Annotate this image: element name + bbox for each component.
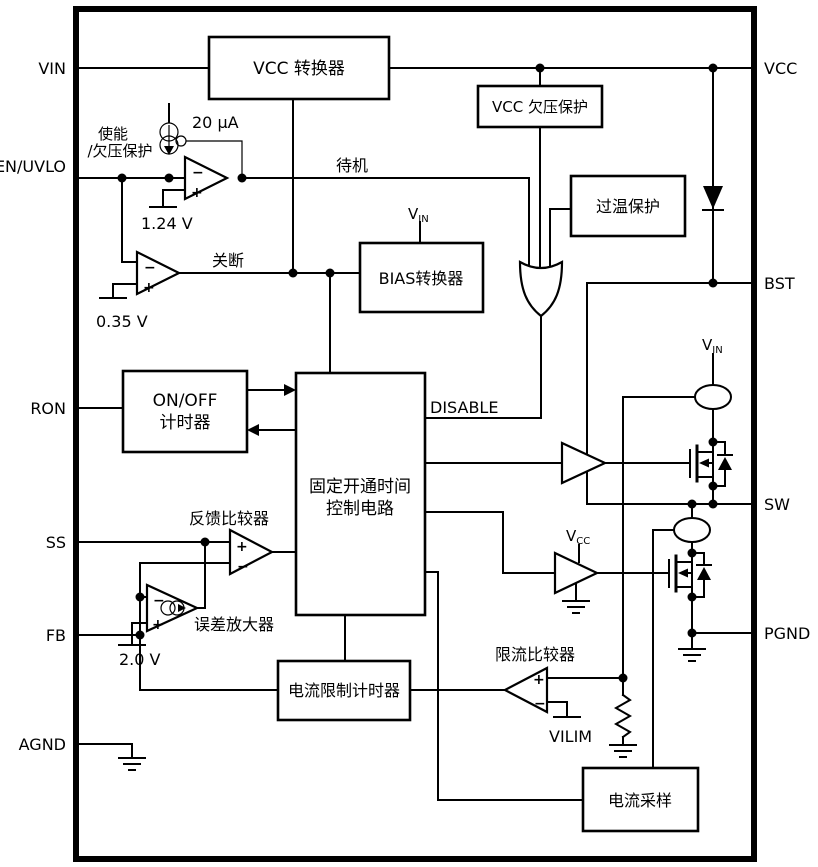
vref-en-label: 1.24 V — [141, 214, 193, 233]
cot-control-label-1: 固定开通时间 — [309, 477, 411, 497]
error-amp-label: 误差放大器 — [194, 615, 274, 634]
bias-converter-block: BIAS转换器 — [360, 243, 483, 312]
disable-label: DISABLE — [430, 398, 498, 417]
pin-vin: VIN — [38, 59, 66, 78]
error-amplifier: − + — [147, 585, 197, 633]
en-comparator: − + — [185, 157, 227, 201]
high-side-mosfet — [690, 442, 732, 486]
vcc-uvp-block: VCC 欠压保护 — [478, 86, 602, 127]
error-amplifier-plus: + — [152, 617, 164, 633]
feedback-comparator-minus: − — [237, 559, 249, 575]
diagram-canvas: VCC 转换器 VCC 欠压保护 过温保护 BIAS转换器 ON/OFF 计时器… — [0, 0, 818, 867]
en-bias-current-source — [160, 123, 186, 155]
ilim-comparator-label: 限流比较器 — [495, 645, 575, 664]
on-off-timer-label-2: 计时器 — [160, 413, 211, 433]
bias-vin-label: VIN — [408, 205, 429, 225]
on-off-timer-label-1: ON/OFF — [153, 391, 218, 411]
shutdown-comparator: − + — [137, 252, 179, 296]
standby-label: 待机 — [336, 156, 368, 175]
otp-block: 过温保护 — [571, 176, 685, 236]
fb-comparator-label: 反馈比较器 — [189, 509, 269, 528]
ilim-timer-block: 电流限制计时器 — [278, 661, 410, 720]
bias-converter-label: BIAS转换器 — [379, 269, 464, 288]
en-comparator-plus: + — [191, 185, 203, 201]
shutdown-comparator-minus: − — [144, 260, 156, 276]
low-driver-ground-icon — [563, 601, 589, 613]
ilim-comparator-plus: + — [533, 672, 545, 688]
vref-shutdown-label: 0.35 V — [96, 312, 148, 331]
error-amplifier-minus: − — [153, 593, 165, 609]
ilim-comparator-minus: − — [534, 696, 546, 712]
mosfet-body-arrow-icon — [699, 459, 709, 468]
fet-vin-label: VIN — [702, 336, 723, 356]
pin-ss: SS — [46, 533, 66, 552]
vref-ea-label: 2.0 V — [119, 650, 161, 669]
arrow-left-icon — [247, 424, 259, 436]
otp-label: 过温保护 — [596, 197, 660, 216]
resistor-ground-icon — [610, 745, 636, 757]
feedback-comparator: + − — [230, 530, 272, 575]
vcc-uvp-label: VCC 欠压保护 — [492, 98, 588, 116]
body-diode-icon — [697, 567, 711, 580]
bootstrap-diode — [703, 186, 723, 210]
en-comparator-minus: − — [192, 165, 204, 181]
high-side-driver — [562, 443, 605, 483]
pin-bst: BST — [764, 274, 795, 293]
or-gate — [520, 262, 562, 316]
high-side-sense-element — [695, 385, 731, 409]
enable-uvlo-label-2: /欠压保护 — [87, 142, 152, 160]
cot-control-label-2: 控制电路 — [326, 499, 394, 519]
low-side-sense-element — [674, 518, 710, 542]
vcc-converter-label: VCC 转换器 — [253, 59, 345, 79]
pin-sw: SW — [764, 495, 790, 514]
feedback-comparator-plus: + — [236, 539, 248, 555]
shutdown-label: 关断 — [212, 251, 244, 270]
current-sense-label: 电流采样 — [608, 791, 672, 810]
bias-current-label: 20 µA — [192, 113, 239, 132]
pin-vcc: VCC — [764, 59, 797, 78]
enable-uvlo-label-1: 使能 — [98, 125, 128, 143]
ilim-timer-label: 电流限制计时器 — [288, 681, 400, 700]
block-diagram: VCC 转换器 VCC 欠压保护 过温保护 BIAS转换器 ON/OFF 计时器… — [0, 0, 818, 867]
cot-control-block: 固定开通时间 控制电路 — [296, 373, 425, 615]
pin-fb: FB — [46, 626, 66, 645]
pin-ron: RON — [30, 399, 66, 418]
ilim-resistor — [616, 695, 630, 737]
arrow-right-icon — [284, 384, 296, 396]
vilim-label: VILIM — [549, 727, 592, 746]
pin-agnd: AGND — [19, 735, 66, 754]
current-sense-block: 电流采样 — [583, 768, 698, 831]
pin-pgnd: PGND — [764, 624, 810, 643]
agnd-ground-icon — [119, 758, 145, 770]
mosfet-body-arrow-icon — [678, 569, 688, 578]
pin-enuvlo: EN/UVLO — [0, 157, 66, 176]
driver-vcc-label: VCC — [566, 527, 590, 547]
ilim-comparator: + − — [505, 668, 547, 712]
body-diode-icon — [718, 457, 732, 470]
low-side-mosfet — [669, 553, 711, 597]
shutdown-comparator-plus: + — [143, 280, 155, 296]
on-off-timer-block: ON/OFF 计时器 — [123, 371, 247, 452]
vcc-converter-block: VCC 转换器 — [209, 37, 389, 99]
